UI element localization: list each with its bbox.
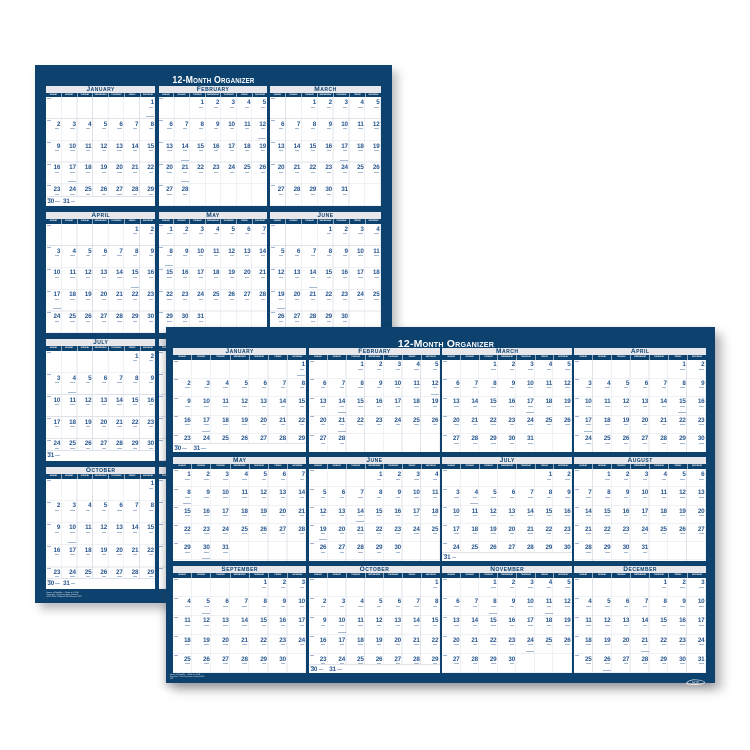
svg-text:HOD: HOD xyxy=(692,680,700,684)
